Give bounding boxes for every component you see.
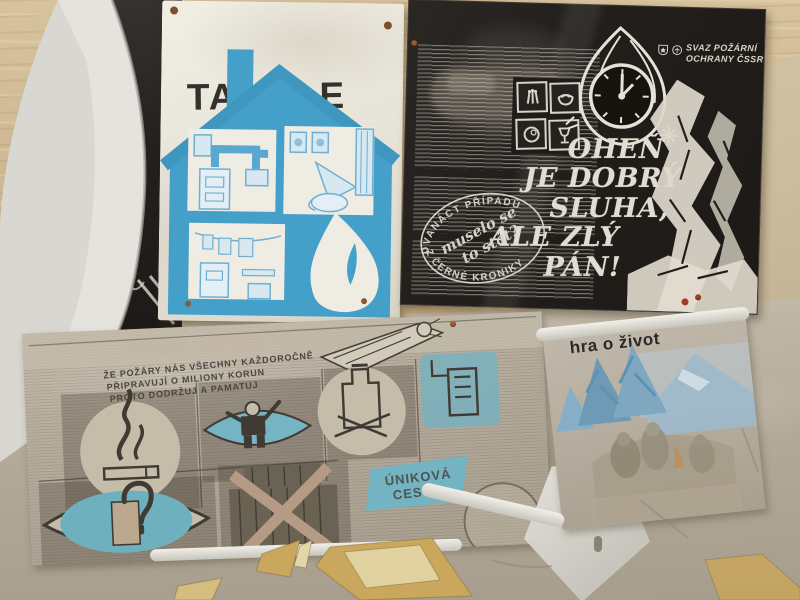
peeling-paint-bits (0, 0, 800, 600)
display-case-photo: TAKHLE (0, 0, 800, 600)
pin-icon (450, 321, 456, 327)
